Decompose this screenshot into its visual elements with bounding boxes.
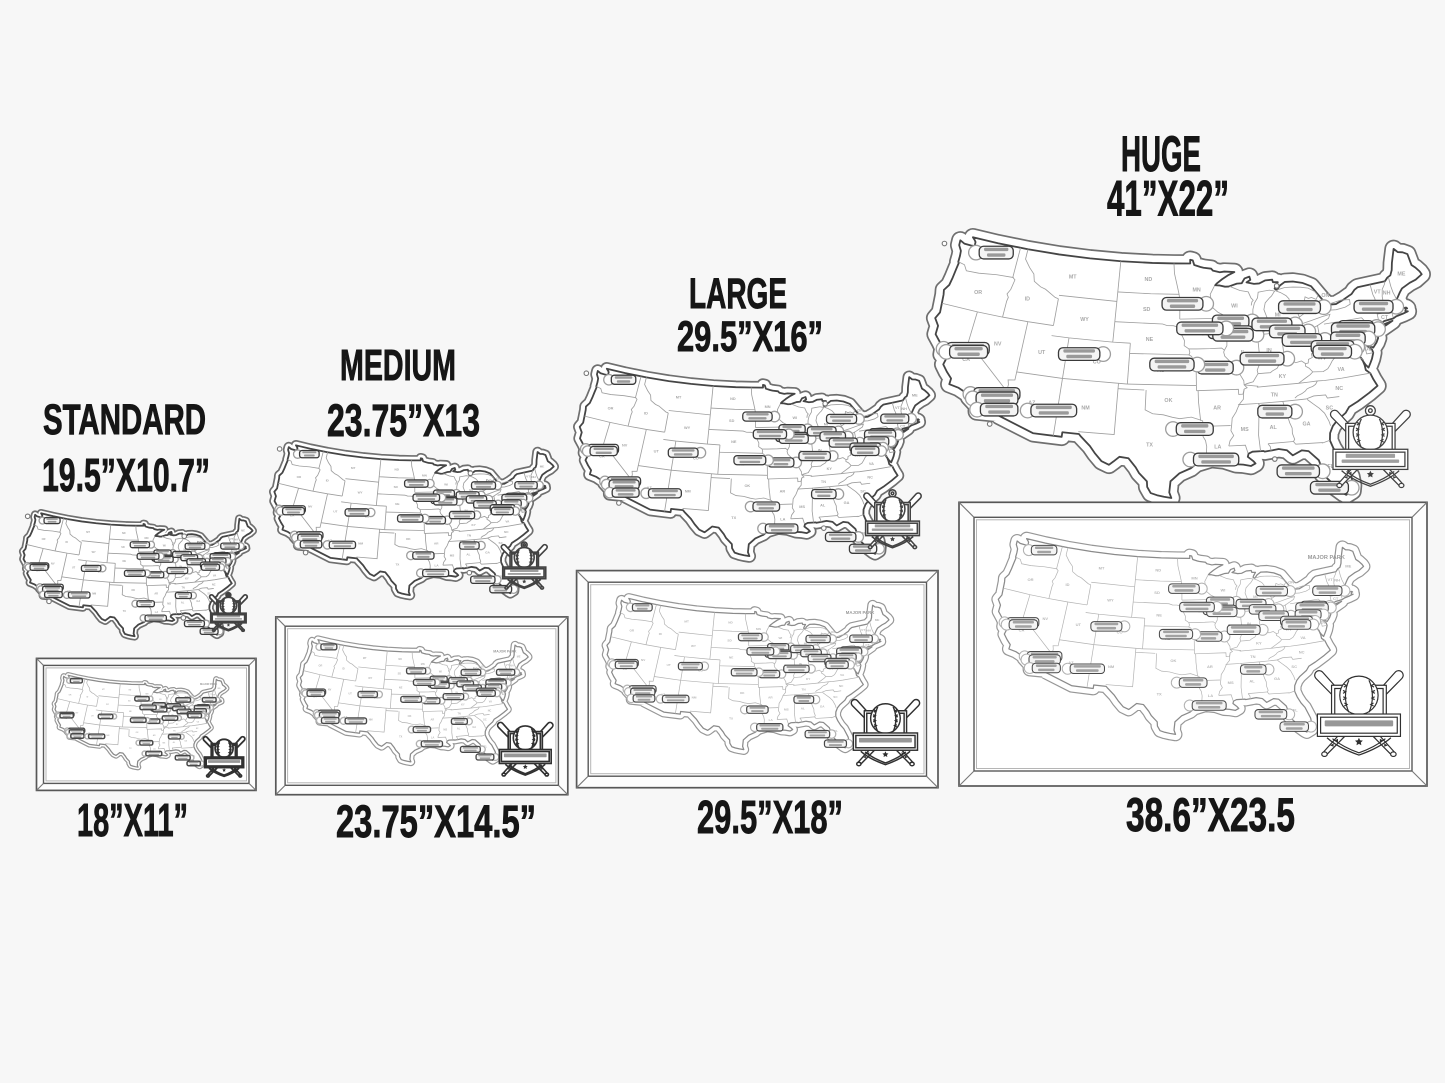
svg-text:VA: VA: [1338, 367, 1345, 373]
svg-text:ME: ME: [875, 618, 880, 622]
svg-text:NH: NH: [234, 538, 238, 541]
svg-text:VA: VA: [213, 574, 216, 577]
svg-text:ON: ON: [831, 630, 836, 634]
svg-text:KY: KY: [1256, 640, 1262, 645]
svg-text:ON: ON: [496, 477, 501, 481]
svg-text:NV: NV: [994, 341, 1002, 347]
svg-text:NE: NE: [731, 440, 737, 444]
svg-text:WI: WI: [444, 483, 448, 487]
svg-text:38.6”X23.5: 38.6”X23.5: [1126, 788, 1295, 841]
svg-text:MN: MN: [421, 663, 425, 666]
svg-text:AR: AR: [154, 593, 158, 596]
svg-text:KY: KY: [185, 578, 189, 581]
svg-text:OK: OK: [1170, 658, 1176, 663]
svg-text:OK: OK: [1164, 398, 1172, 404]
svg-text:AL: AL: [1270, 425, 1278, 431]
svg-text:NE: NE: [1156, 612, 1162, 617]
svg-text:UT: UT: [1076, 622, 1082, 627]
svg-text:NM: NM: [106, 735, 109, 737]
svg-text:MN: MN: [765, 405, 771, 409]
svg-text:OK: OK: [406, 537, 411, 541]
svg-text:MAJOR PARK: MAJOR PARK: [200, 682, 217, 686]
svg-text:AL: AL: [457, 727, 461, 730]
svg-text:WY: WY: [684, 426, 691, 430]
svg-text:NM: NM: [358, 541, 363, 545]
svg-text:ID: ID: [1025, 297, 1030, 303]
svg-text:KY: KY: [827, 467, 833, 471]
svg-text:WI: WI: [792, 416, 797, 420]
svg-text:SC: SC: [833, 695, 838, 699]
svg-text:VT: VT: [506, 664, 510, 667]
svg-text:ND: ND: [728, 621, 733, 625]
svg-text:AR: AR: [780, 490, 786, 494]
svg-text:UT: UT: [72, 566, 76, 569]
svg-text:ND: ND: [122, 532, 126, 535]
svg-text:OK: OK: [408, 715, 412, 718]
svg-text:MAJOR PARK: MAJOR PARK: [1308, 555, 1345, 561]
svg-text:OK: OK: [744, 484, 750, 488]
svg-text:MS: MS: [450, 554, 455, 558]
svg-text:TN: TN: [467, 534, 471, 538]
svg-text:NM: NM: [92, 593, 96, 596]
svg-text:DE: DE: [1365, 346, 1373, 352]
svg-text:ND: ND: [394, 467, 399, 471]
svg-text:SD: SD: [121, 546, 125, 549]
svg-text:AR: AR: [1207, 664, 1213, 669]
svg-text:NC: NC: [839, 684, 844, 688]
svg-text:STANDARD: STANDARD: [43, 396, 206, 444]
svg-text:WY: WY: [92, 551, 96, 554]
svg-text:TX: TX: [123, 610, 127, 613]
svg-text:NH: NH: [531, 475, 535, 479]
svg-text:MN: MN: [756, 627, 762, 631]
svg-text:CT: CT: [233, 550, 237, 553]
svg-text:WY: WY: [358, 490, 363, 494]
svg-text:MS: MS: [1228, 680, 1234, 685]
svg-text:CT: CT: [1333, 596, 1339, 601]
svg-text:CT: CT: [1381, 315, 1389, 321]
svg-text:SD: SD: [1154, 590, 1160, 595]
svg-text:NC: NC: [504, 530, 509, 534]
svg-text:MS: MS: [167, 603, 171, 606]
svg-text:WI: WI: [1231, 303, 1238, 309]
svg-text:OR: OR: [42, 538, 46, 541]
svg-text:ID: ID: [342, 667, 345, 670]
svg-text:WI: WI: [779, 636, 783, 640]
svg-text:CT: CT: [865, 643, 869, 647]
svg-text:AL: AL: [801, 707, 805, 711]
svg-text:UT: UT: [667, 663, 671, 667]
svg-text:VT: VT: [526, 475, 530, 479]
svg-text:WI: WI: [1221, 587, 1226, 592]
svg-text:MT: MT: [1099, 566, 1105, 571]
svg-text:NC: NC: [1299, 649, 1305, 654]
svg-text:MN: MN: [1192, 288, 1200, 294]
svg-text:AR: AR: [768, 695, 773, 699]
svg-text:NV: NV: [328, 688, 332, 691]
svg-text:ON: ON: [205, 539, 209, 542]
svg-text:OR: OR: [974, 290, 982, 296]
svg-text:TN: TN: [1271, 392, 1278, 398]
svg-text:WI: WI: [439, 671, 442, 674]
svg-text:ME: ME: [1345, 564, 1351, 569]
svg-text:MAJOR PARK: MAJOR PARK: [493, 650, 517, 654]
svg-text:MT: MT: [86, 531, 90, 534]
svg-text:AL: AL: [466, 552, 470, 556]
svg-text:19.5”X10.7”: 19.5”X10.7”: [42, 449, 210, 501]
svg-text:MN: MN: [422, 474, 427, 478]
svg-text:UT: UT: [333, 509, 337, 513]
svg-text:OR: OR: [297, 475, 302, 479]
svg-text:AL: AL: [820, 503, 826, 507]
svg-text:NH: NH: [1334, 578, 1340, 583]
svg-text:NE: NE: [399, 686, 403, 689]
svg-text:TX: TX: [1157, 692, 1162, 697]
svg-text:UT: UT: [654, 450, 660, 454]
svg-text:ND: ND: [398, 658, 402, 661]
svg-text:DE: DE: [888, 447, 894, 451]
svg-text:ON: ON: [481, 666, 485, 669]
svg-text:ID: ID: [644, 411, 648, 415]
svg-text:NV: NV: [622, 443, 628, 447]
svg-text:ID: ID: [1065, 582, 1069, 587]
svg-text:WY: WY: [368, 677, 372, 680]
svg-text:NM: NM: [685, 490, 691, 494]
svg-text:UT: UT: [1038, 350, 1046, 356]
svg-text:NM: NM: [369, 718, 373, 721]
svg-text:23.75”X13: 23.75”X13: [327, 395, 480, 446]
svg-text:OR: OR: [319, 664, 323, 667]
svg-text:AR: AR: [1213, 406, 1221, 412]
svg-text:GA: GA: [196, 600, 200, 603]
svg-text:WY: WY: [1080, 317, 1089, 323]
svg-text:MT: MT: [1069, 275, 1077, 281]
svg-text:WI: WI: [163, 544, 166, 547]
svg-text:MEDIUM: MEDIUM: [340, 341, 456, 390]
svg-text:MS: MS: [784, 708, 789, 712]
svg-text:SD: SD: [727, 638, 732, 642]
svg-text:NH: NH: [510, 665, 514, 668]
svg-text:SD: SD: [729, 419, 735, 423]
svg-text:NH: NH: [1383, 291, 1391, 297]
svg-text:VA: VA: [489, 700, 492, 703]
svg-text:AL: AL: [181, 602, 185, 605]
svg-text:TX: TX: [731, 516, 736, 520]
svg-text:VA: VA: [869, 462, 874, 466]
svg-text:TN: TN: [457, 712, 461, 715]
svg-text:OK: OK: [131, 589, 135, 592]
svg-text:AR: AR: [434, 541, 439, 545]
svg-text:TN: TN: [181, 586, 185, 589]
svg-text:NM: NM: [692, 695, 697, 699]
svg-text:ND: ND: [1155, 567, 1161, 572]
svg-text:GA: GA: [820, 705, 825, 709]
svg-text:MN: MN: [145, 537, 149, 540]
svg-text:CT: CT: [900, 424, 906, 428]
svg-text:MS: MS: [443, 728, 447, 731]
svg-text:ON: ON: [1288, 579, 1294, 584]
svg-text:NM: NM: [1081, 406, 1090, 412]
svg-text:ID: ID: [65, 541, 68, 544]
svg-text:ME: ME: [912, 393, 918, 397]
svg-text:TX: TX: [1146, 442, 1153, 448]
svg-text:VT: VT: [1374, 289, 1382, 295]
svg-text:ND: ND: [730, 397, 736, 401]
svg-text:ND: ND: [1144, 277, 1152, 283]
svg-text:TX: TX: [399, 736, 403, 739]
svg-text:MT: MT: [684, 619, 689, 623]
svg-text:OR: OR: [630, 628, 635, 632]
svg-text:LA: LA: [155, 611, 159, 614]
svg-text:MT: MT: [363, 657, 367, 660]
svg-text:OR: OR: [1028, 577, 1034, 582]
svg-text:ME: ME: [517, 656, 521, 659]
svg-text:18”X11”: 18”X11”: [77, 794, 188, 846]
svg-text:MS: MS: [799, 505, 805, 509]
svg-text:NE: NE: [395, 502, 399, 506]
svg-text:NH: NH: [866, 629, 871, 633]
svg-text:LARGE: LARGE: [689, 270, 787, 318]
svg-text:GA: GA: [1274, 676, 1280, 681]
svg-text:MN: MN: [1191, 575, 1197, 580]
svg-text:23.75”X14.5”: 23.75”X14.5”: [336, 796, 536, 847]
svg-text:NH: NH: [901, 407, 907, 411]
svg-text:KY: KY: [461, 704, 465, 707]
svg-text:KY: KY: [472, 523, 476, 527]
svg-text:SC: SC: [483, 718, 487, 721]
svg-text:SD: SD: [398, 672, 402, 675]
svg-text:CT: CT: [530, 489, 534, 493]
svg-text:VT: VT: [895, 406, 901, 410]
svg-text:NE: NE: [123, 560, 127, 563]
svg-text:TN: TN: [1250, 654, 1255, 659]
svg-text:29.5”X18”: 29.5”X18”: [697, 791, 843, 843]
svg-text:NC: NC: [212, 583, 216, 586]
svg-text:AR: AR: [431, 718, 435, 721]
svg-text:NV: NV: [51, 562, 55, 565]
svg-text:MT: MT: [676, 395, 682, 399]
svg-text:SC: SC: [1291, 664, 1297, 669]
svg-text:GA: GA: [1302, 422, 1310, 428]
svg-text:NE: NE: [729, 656, 733, 660]
svg-text:TN: TN: [821, 480, 826, 484]
svg-text:GA: GA: [485, 550, 490, 554]
svg-text:NC: NC: [1335, 386, 1343, 392]
svg-text:ME: ME: [1397, 272, 1405, 278]
svg-text:KY: KY: [1279, 374, 1287, 380]
svg-text:NV: NV: [1042, 616, 1048, 621]
svg-text:AL: AL: [1249, 679, 1255, 684]
svg-text:LA: LA: [1214, 444, 1221, 450]
svg-text:41”X22”: 41”X22”: [1107, 171, 1229, 227]
svg-text:29.5”X16”: 29.5”X16”: [677, 313, 823, 361]
svg-text:UT: UT: [349, 692, 353, 695]
svg-text:GA: GA: [844, 501, 850, 505]
svg-text:WY: WY: [1107, 598, 1114, 603]
svg-text:MT: MT: [351, 466, 356, 470]
svg-text:OR: OR: [608, 406, 614, 410]
svg-text:CT: CT: [509, 676, 513, 679]
svg-text:VT: VT: [230, 538, 234, 541]
svg-text:LA: LA: [780, 517, 785, 521]
svg-text:ME: ME: [540, 464, 545, 468]
svg-text:VT: VT: [861, 628, 865, 632]
svg-text:VA: VA: [1300, 635, 1305, 640]
svg-text:VT: VT: [1328, 577, 1334, 582]
svg-text:MS: MS: [1241, 427, 1249, 433]
svg-text:MAJOR PARK: MAJOR PARK: [846, 610, 875, 615]
svg-text:NE: NE: [1146, 337, 1154, 343]
svg-text:ME: ME: [241, 529, 245, 532]
svg-text:OK: OK: [740, 691, 745, 695]
svg-text:SD: SD: [1143, 307, 1151, 313]
svg-text:GA: GA: [472, 726, 476, 729]
svg-text:ON: ON: [857, 409, 863, 413]
svg-text:NM: NM: [1108, 664, 1115, 669]
svg-text:NC: NC: [867, 476, 873, 480]
svg-text:LA: LA: [431, 737, 435, 740]
svg-text:ON: ON: [1321, 293, 1329, 299]
svg-text:LA: LA: [1208, 693, 1213, 698]
svg-text:NC: NC: [488, 709, 492, 712]
